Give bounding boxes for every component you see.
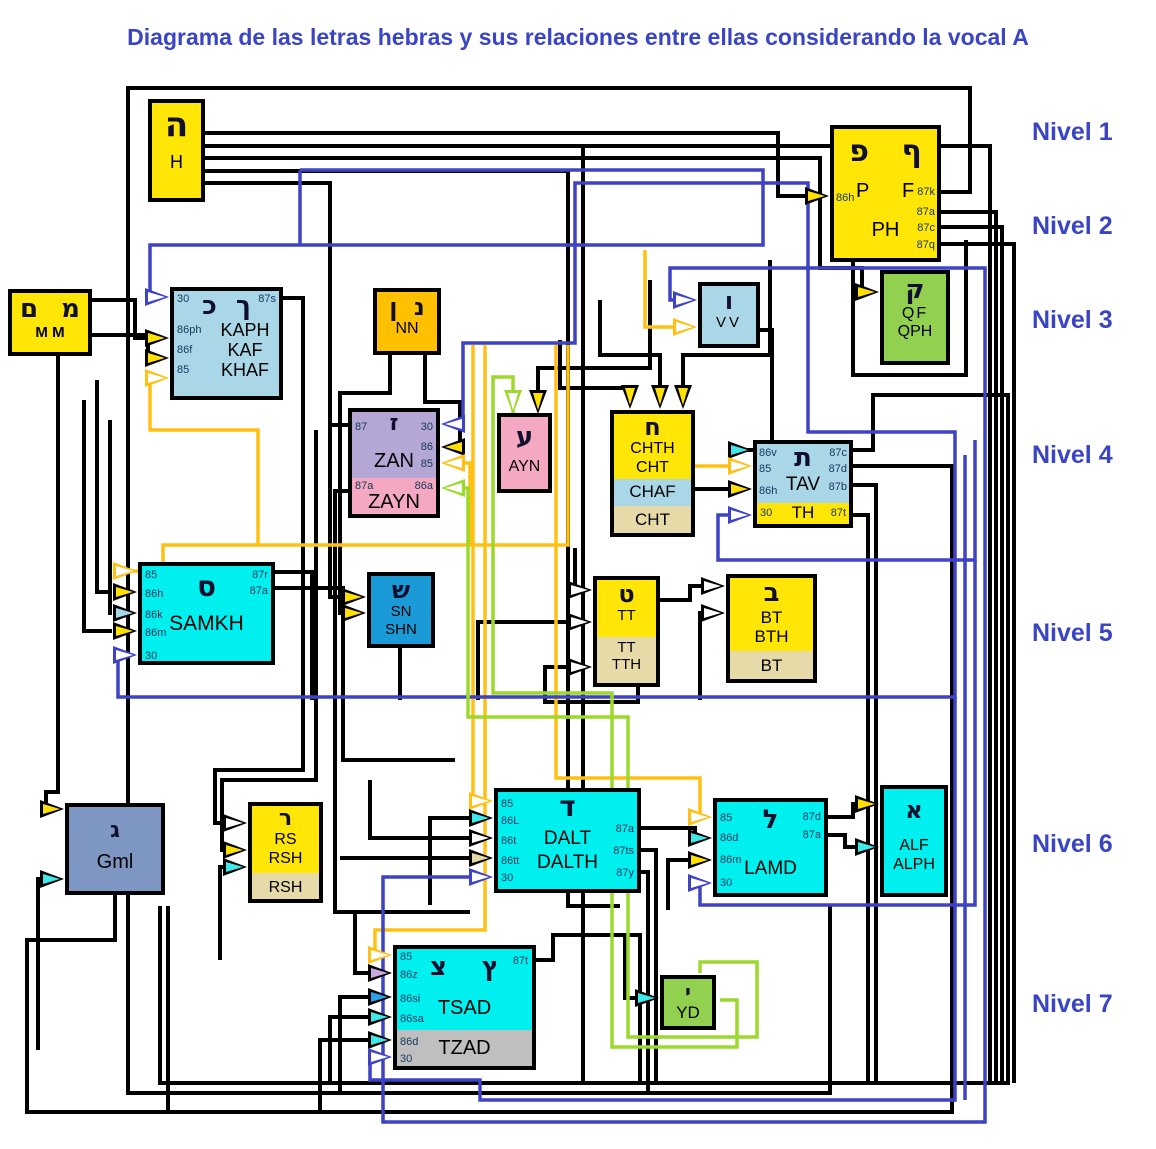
port-label: 87d <box>829 464 847 475</box>
port-label: 86m <box>720 855 741 866</box>
node-name-label: NN <box>377 320 437 338</box>
node-vv: ו VV <box>698 282 760 348</box>
port-label: 86si <box>400 994 420 1005</box>
port-label: 86v <box>759 448 777 459</box>
section-label: RSH <box>252 879 319 897</box>
node-h: ה H <box>148 99 205 202</box>
node-name-label: KHAF <box>211 360 279 381</box>
node-name-label: AYN <box>501 458 548 476</box>
node-name-label: YD <box>664 1003 712 1023</box>
section-label: CHAF <box>614 482 691 502</box>
node-name-label: M M <box>12 324 88 341</box>
node-ayn: ע AYN <box>497 413 552 493</box>
hebrew-letters: ר <box>252 807 319 831</box>
port-label: 87t <box>831 508 846 519</box>
hebrew-letters: א <box>884 797 944 823</box>
port-label: 86L <box>501 816 519 827</box>
hebrew-letters: ג <box>69 819 161 843</box>
port-label: 87q <box>917 240 935 251</box>
diagram-title: Diagrama de las letras hebras y sus rela… <box>0 24 1156 51</box>
hebrew-letters: ש <box>371 577 431 603</box>
port-label: 30 <box>720 878 732 889</box>
port-label: 85 <box>177 365 211 376</box>
hebrew-letters: ן נ <box>377 294 437 320</box>
node-mm: ם מ M M <box>8 289 92 356</box>
level-label-3: Nivel 3 <box>1032 306 1113 335</box>
node-name-label: VV <box>702 314 756 331</box>
port-label: 85 <box>421 459 433 470</box>
port-label: 87c <box>917 223 935 234</box>
node-samkh: ס SAMKH 85 86h 86k 86m 30 87r 87a <box>138 562 275 665</box>
port-label: 87c <box>829 448 847 459</box>
node-name-label: KAPH <box>211 320 279 341</box>
port-label: 86h <box>759 486 777 497</box>
node-name-label: QF <box>884 305 946 323</box>
port-label: 85 <box>501 799 513 810</box>
node-name-label: SHN <box>371 621 431 638</box>
node-tav: ת TAV 86v 85 86h 87c 87d 87b 30 TH 87t <box>753 440 853 528</box>
node-name-label: KAF <box>211 340 279 361</box>
port-label: 86m <box>145 628 166 639</box>
port-label: 86d <box>400 1037 418 1048</box>
node-name-label: RSH <box>252 850 319 868</box>
section-label: TT <box>597 639 656 656</box>
letter-f-label: F <box>902 181 914 201</box>
port-label: 87k <box>917 187 935 198</box>
node-bt: ב BT BTH BT <box>726 574 817 683</box>
port-label: 87 <box>355 422 367 433</box>
node-rs: ר RS RSH RSH <box>248 802 323 903</box>
node-name-label: ALF <box>884 837 944 855</box>
node-name-label: QPH <box>884 323 946 341</box>
port-label: 87t <box>513 956 528 967</box>
node-name-label: RS <box>252 831 319 849</box>
hebrew-letters: ם מ <box>12 295 88 324</box>
port-label: 86z <box>400 970 418 981</box>
port-label: 85 <box>400 952 412 963</box>
port-label: 30 <box>501 873 513 884</box>
level-label-4: Nivel 4 <box>1032 441 1113 470</box>
port-label: 87d <box>803 812 821 823</box>
port-label: 86f <box>177 345 211 356</box>
hebrew-letters: ו <box>702 288 756 314</box>
node-name-label: ALPH <box>884 856 944 874</box>
node-lamd: ל LAMD 85 86d 86m 30 87d 87a <box>713 798 828 897</box>
port-label: 87a <box>917 207 935 218</box>
port-label: 30 <box>145 651 157 662</box>
node-alf: א ALF ALPH <box>880 785 948 897</box>
node-zan: 87 30 ז 86 ZAN 85 87a 86a ZAYN <box>348 408 440 518</box>
port-label: 30 <box>177 294 189 305</box>
port-label: 87r <box>252 570 268 581</box>
node-kaph: 30 87s כ ך 86phKAPH 86fKAF 85KHAF <box>170 287 283 400</box>
port-label: 87a <box>803 830 821 841</box>
port-label: 86sa <box>400 1014 424 1025</box>
port-label: 85 <box>720 813 732 824</box>
hebrew-letters: ט <box>597 581 656 607</box>
port-label: 86d <box>720 833 738 844</box>
port-label: 86h <box>836 193 854 204</box>
node-sn: ש SN SHN <box>367 572 435 648</box>
node-name-label: CHTH <box>614 440 691 458</box>
node-name-label: Gml <box>69 851 161 874</box>
node-gml: ג Gml <box>65 803 165 895</box>
port-label: 85 <box>145 570 157 581</box>
port-label: 87b <box>829 482 847 493</box>
node-qf: ק QF QPH <box>880 270 950 365</box>
port-label: 85 <box>759 464 771 475</box>
node-tsad: צ ץ TSAD TZAD 87t 85 86z 86si 86sa 86d 3… <box>393 945 536 1070</box>
port-label: 86h <box>145 589 163 600</box>
node-dalt: ד DALT DALTH 85 86L 86t 86tt 30 87a 87ts… <box>494 788 641 893</box>
hebrew-letters: ק <box>884 276 946 305</box>
node-yd: י YD <box>660 975 716 1030</box>
node-name-label: ZAYN <box>352 491 436 514</box>
section-label: BT <box>730 656 813 676</box>
node-name-label: SN <box>371 603 431 620</box>
section-label: TTH <box>597 656 656 673</box>
node-name-label: TT <box>597 607 656 624</box>
node-tt: ט TT TT TTH <box>593 576 660 687</box>
node-ph: פ ף P F PH 86h 87k 87a 87c 87q <box>830 125 941 262</box>
port-label: 87s <box>258 294 276 305</box>
section-label: CHT <box>614 510 691 530</box>
level-label-1: Nivel 1 <box>1032 118 1113 147</box>
node-name-label: BT <box>730 608 813 628</box>
letter-p-label: P <box>856 181 869 201</box>
level-label-7: Nivel 7 <box>1032 990 1113 1019</box>
port-label: 86t <box>501 836 516 847</box>
hebrew-letters: ב <box>730 579 813 608</box>
port-label: 86ph <box>177 325 211 336</box>
hebrew-letters: ע <box>501 423 548 452</box>
hebrew-letters: י <box>664 981 712 1003</box>
level-label-2: Nivel 2 <box>1032 212 1113 241</box>
hebrew-letters: פ ף <box>834 135 937 168</box>
port-label: 86tt <box>501 856 519 867</box>
node-name-label: CHT <box>614 459 691 477</box>
port-label: 86k <box>145 610 163 621</box>
diagram-canvas: Diagrama de las letras hebras y sus rela… <box>0 0 1156 1149</box>
node-nn: ן נ NN <box>373 288 441 355</box>
hebrew-letters: ה <box>152 107 201 144</box>
level-label-5: Nivel 5 <box>1032 619 1113 648</box>
port-label: 30 <box>400 1054 412 1065</box>
node-name-label: BTH <box>730 627 813 647</box>
port-label: 87a <box>250 586 268 597</box>
level-label-6: Nivel 6 <box>1032 830 1113 859</box>
port-label: 30 <box>421 422 433 433</box>
hebrew-letters: ח <box>614 414 691 440</box>
node-name-label: H <box>152 152 201 173</box>
port-label: 87a <box>616 824 634 835</box>
port-label: 87y <box>616 868 634 879</box>
port-label: 87ts <box>613 846 634 857</box>
node-chth: ח CHTH CHT CHAF CHT <box>610 410 695 537</box>
